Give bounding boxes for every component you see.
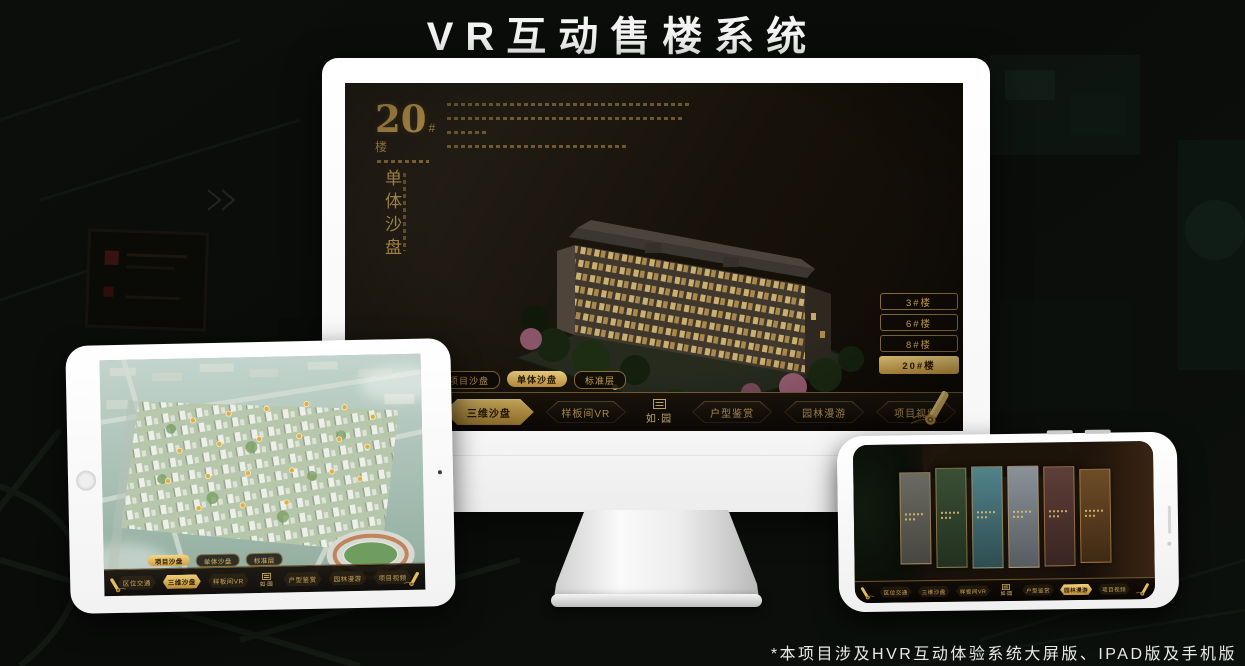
gallery-panel-garden[interactable] bbox=[935, 468, 967, 568]
ruyuan-logo[interactable]: 如·园 bbox=[1000, 584, 1012, 597]
nav-item-garden-tour[interactable]: 园林漫游 bbox=[1060, 584, 1092, 595]
gallery-panel-aerial[interactable] bbox=[971, 466, 1003, 568]
scroll-icon[interactable] bbox=[403, 572, 420, 588]
nav-item-garden-tour[interactable]: 园林漫游 bbox=[328, 571, 366, 586]
gallery-panel-interior[interactable] bbox=[1079, 469, 1111, 563]
gallery-panel-courtyard[interactable] bbox=[899, 472, 931, 564]
tab-single-sandbox[interactable]: 单体沙盘 bbox=[196, 553, 240, 567]
scene-gallery bbox=[899, 464, 1111, 571]
monitor-stand bbox=[554, 510, 759, 598]
home-button[interactable] bbox=[76, 470, 96, 490]
nav-item-floorplan[interactable]: 户型鉴赏 bbox=[1022, 584, 1054, 595]
power-button[interactable] bbox=[1085, 430, 1111, 434]
nav-item-model-room-vr[interactable]: 样板间VR bbox=[956, 585, 991, 596]
volume-button[interactable] bbox=[1047, 430, 1073, 434]
logo-text: 如·园 bbox=[1000, 590, 1012, 597]
tablet-navbar: 区位交通 三维沙盘 样板间VR 如·园 户型鉴赏 园林漫游 项目视频 bbox=[104, 563, 425, 597]
gallery-panel-scene[interactable] bbox=[1043, 466, 1075, 566]
phone-device: 区位交通 三维沙盘 样板间VR 如·园 户型鉴赏 园林漫游 项目视频 bbox=[837, 432, 1179, 613]
page-title: VR互动售楼系统 bbox=[0, 4, 1245, 62]
tablet-screen: 项目沙盘 单体沙盘 标准层 区位交通 三维沙盘 样板间VR 如·园 户型鉴赏 园… bbox=[100, 354, 426, 597]
footnote: *本项目涉及HVR互动体验系统大屏版、IPAD版及手机版 bbox=[771, 640, 1237, 664]
camera-icon bbox=[1167, 542, 1171, 546]
logo-text: 如·园 bbox=[260, 579, 273, 587]
tablet-device: 项目沙盘 单体沙盘 标准层 区位交通 三维沙盘 样板间VR 如·园 户型鉴赏 园… bbox=[65, 338, 456, 614]
nav-item-sandbox-3d[interactable]: 三维沙盘 bbox=[918, 586, 950, 597]
speaker-grille bbox=[1168, 506, 1171, 534]
camera-icon bbox=[438, 470, 442, 474]
nav-item-location[interactable]: 区位交通 bbox=[880, 586, 912, 597]
tab-project-sandbox[interactable]: 项目沙盘 bbox=[148, 555, 190, 567]
scroll-icon[interactable] bbox=[109, 578, 126, 594]
monitor-stand-base bbox=[551, 594, 762, 607]
ruyuan-logo[interactable]: 如·园 bbox=[260, 572, 273, 587]
nav-item-project-video[interactable]: 项目视频 bbox=[1098, 583, 1130, 594]
promo-canvas: { "page": { "title": "VR互动售楼系统", "footno… bbox=[0, 0, 1245, 666]
gallery-panel-building[interactable] bbox=[1007, 466, 1039, 568]
nav-item-floorplan[interactable]: 户型鉴赏 bbox=[283, 572, 321, 587]
phone-screen: 区位交通 三维沙盘 样板间VR 如·园 户型鉴赏 园林漫游 项目视频 bbox=[853, 441, 1155, 603]
scroll-icon[interactable] bbox=[860, 587, 875, 601]
scroll-icon[interactable] bbox=[1135, 583, 1150, 597]
phone-navbar: 区位交通 三维沙盘 样板间VR 如·园 户型鉴赏 园林漫游 项目视频 bbox=[855, 577, 1155, 603]
tab-standard-floor[interactable]: 标准层 bbox=[246, 553, 283, 567]
nav-item-sandbox-3d[interactable]: 三维沙盘 bbox=[163, 574, 201, 589]
nav-item-model-room-vr[interactable]: 样板间VR bbox=[208, 573, 249, 588]
